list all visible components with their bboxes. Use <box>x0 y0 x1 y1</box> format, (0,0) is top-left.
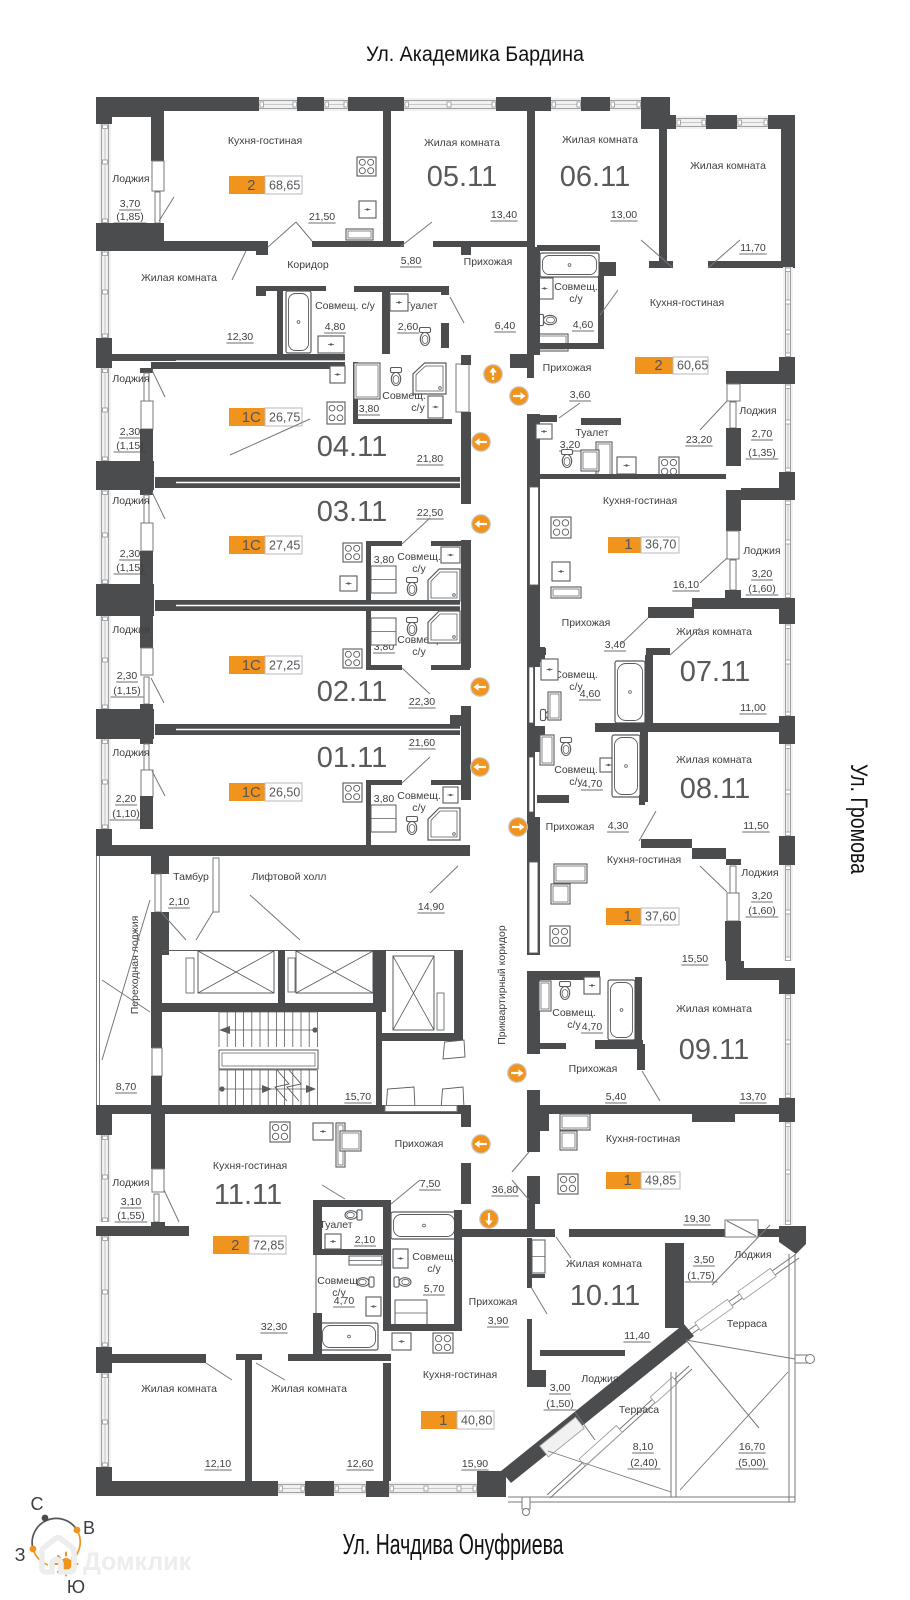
svg-text:11,50: 11,50 <box>743 820 769 832</box>
svg-text:С: С <box>31 1494 44 1514</box>
svg-text:Жилая комната: Жилая комната <box>690 160 766 172</box>
svg-text:В: В <box>83 1518 95 1538</box>
svg-text:Жилая комната: Жилая комната <box>676 626 752 638</box>
svg-text:Совмещ.: Совмещ. <box>397 790 441 802</box>
svg-text:Прихожая: Прихожая <box>546 821 595 833</box>
svg-text:49,85: 49,85 <box>645 1174 676 1188</box>
svg-text:Совмещ.: Совмещ. <box>317 1275 361 1287</box>
svg-text:1: 1 <box>439 1412 447 1429</box>
svg-text:3,20: 3,20 <box>752 890 773 902</box>
svg-text:13,70: 13,70 <box>740 1091 766 1103</box>
svg-text:Совмещ.: Совмещ. <box>382 390 426 402</box>
svg-text:09.11: 09.11 <box>679 1034 749 1066</box>
svg-text:15,50: 15,50 <box>682 953 708 965</box>
svg-text:Жилая комната: Жилая комната <box>141 1383 217 1395</box>
svg-text:4,70: 4,70 <box>334 1295 355 1307</box>
svg-text:04.11: 04.11 <box>317 431 387 463</box>
svg-text:Совмещ.: Совмещ. <box>412 1251 456 1263</box>
svg-text:3,80: 3,80 <box>359 403 380 415</box>
svg-text:с/у: с/у <box>412 646 426 658</box>
svg-text:22,30: 22,30 <box>409 696 435 708</box>
svg-text:Ю: Ю <box>67 1577 85 1597</box>
svg-text:02.11: 02.11 <box>317 676 387 708</box>
svg-text:1: 1 <box>624 1172 632 1189</box>
svg-text:08.11: 08.11 <box>680 773 750 805</box>
svg-text:2,60: 2,60 <box>398 321 419 333</box>
svg-text:13,40: 13,40 <box>491 209 517 221</box>
svg-text:Кухня-гостиная: Кухня-гостиная <box>607 854 681 866</box>
svg-text:с/у: с/у <box>569 293 583 305</box>
svg-text:7,50: 7,50 <box>420 1178 441 1190</box>
svg-text:2,30: 2,30 <box>120 548 141 560</box>
svg-text:(1,85): (1,85) <box>116 211 143 223</box>
svg-text:60,65: 60,65 <box>677 359 708 373</box>
svg-text:26,75: 26,75 <box>269 411 300 425</box>
svg-text:Жилая комната: Жилая комната <box>566 1258 642 1270</box>
svg-text:Ул. Академика Бардина: Ул. Академика Бардина <box>366 43 584 66</box>
svg-text:Лифтовой холл: Лифтовой холл <box>252 871 327 883</box>
svg-text:2: 2 <box>231 1237 239 1254</box>
svg-text:3,00: 3,00 <box>550 1382 571 1394</box>
svg-text:3,50: 3,50 <box>694 1254 715 1266</box>
svg-text:(1,50): (1,50) <box>546 1398 573 1410</box>
svg-text:с/у: с/у <box>567 1019 581 1031</box>
svg-text:Жилая комната: Жилая комната <box>676 1003 752 1015</box>
svg-text:03.11: 03.11 <box>317 496 387 528</box>
svg-text:4,30: 4,30 <box>608 820 629 832</box>
svg-text:Приквартирный коридор: Приквартирный коридор <box>496 925 508 1045</box>
svg-text:36,70: 36,70 <box>645 538 676 552</box>
svg-text:Совмещ.: Совмещ. <box>554 281 598 293</box>
svg-text:с/у: с/у <box>412 802 426 814</box>
svg-text:Прихожая: Прихожая <box>543 362 592 374</box>
svg-text:Туалет: Туалет <box>575 427 608 439</box>
svg-text:(1,10): (1,10) <box>112 808 139 820</box>
svg-text:Прихожая: Прихожая <box>464 256 513 268</box>
svg-text:1С: 1С <box>242 784 261 801</box>
svg-text:Лоджия: Лоджия <box>112 373 149 385</box>
svg-text:16,70: 16,70 <box>739 1441 765 1453</box>
svg-text:12,30: 12,30 <box>227 331 253 343</box>
svg-text:21,80: 21,80 <box>417 453 443 465</box>
svg-text:Лоджия: Лоджия <box>734 1249 771 1261</box>
svg-text:Совмещ. с/у: Совмещ. с/у <box>315 300 376 312</box>
svg-text:Прихожая: Прихожая <box>469 1296 518 1308</box>
svg-text:4,60: 4,60 <box>573 319 594 331</box>
svg-text:2,70: 2,70 <box>752 428 773 440</box>
svg-text:15,90: 15,90 <box>462 1458 488 1470</box>
svg-text:Жилая комната: Жилая комната <box>676 754 752 766</box>
svg-text:(1,35): (1,35) <box>748 447 775 459</box>
svg-text:01.11: 01.11 <box>317 742 387 774</box>
svg-text:21,50: 21,50 <box>309 211 335 223</box>
svg-text:3,20: 3,20 <box>752 568 773 580</box>
svg-text:1С: 1С <box>242 537 261 554</box>
svg-text:Лоджия: Лоджия <box>112 495 149 507</box>
svg-text:2,30: 2,30 <box>120 426 141 438</box>
svg-text:3,70: 3,70 <box>120 198 141 210</box>
svg-text:27,45: 27,45 <box>269 539 300 553</box>
svg-text:21,60: 21,60 <box>409 737 435 749</box>
svg-text:Лоджия: Лоджия <box>741 867 778 879</box>
svg-text:3,10: 3,10 <box>121 1196 142 1208</box>
svg-text:Домклик: Домклик <box>83 1548 192 1576</box>
svg-text:2,10: 2,10 <box>355 1234 376 1246</box>
svg-text:Кухня-гостиная: Кухня-гостиная <box>423 1369 497 1381</box>
svg-text:2,30: 2,30 <box>117 670 138 682</box>
svg-text:Лоджия: Лоджия <box>112 624 149 636</box>
svg-text:Лоджия: Лоджия <box>112 173 149 185</box>
svg-text:Терраса: Терраса <box>727 1318 767 1330</box>
svg-text:(1,55): (1,55) <box>117 1210 144 1222</box>
svg-text:Жилая комната: Жилая комната <box>141 272 217 284</box>
svg-text:Совмещ.: Совмещ. <box>554 764 598 776</box>
svg-text:Кухня-гостиная: Кухня-гостиная <box>650 297 724 309</box>
svg-text:5,80: 5,80 <box>401 255 422 267</box>
svg-text:(1,15): (1,15) <box>113 685 140 697</box>
svg-text:(1,75): (1,75) <box>687 1270 714 1282</box>
svg-text:Лоджия: Лоджия <box>112 1177 149 1189</box>
svg-text:19,30: 19,30 <box>684 1213 710 1225</box>
svg-text:2: 2 <box>247 177 255 194</box>
svg-text:(2,40): (2,40) <box>630 1457 657 1469</box>
svg-text:4,80: 4,80 <box>325 321 346 333</box>
svg-text:Туалет: Туалет <box>319 1219 352 1231</box>
svg-text:5,40: 5,40 <box>606 1091 627 1103</box>
svg-text:Кухня-гостиная: Кухня-гостиная <box>228 135 302 147</box>
svg-text:(5,00): (5,00) <box>738 1457 765 1469</box>
svg-text:13,00: 13,00 <box>611 209 637 221</box>
svg-text:Прихожая: Прихожая <box>569 1063 618 1075</box>
svg-text:Лоджия: Лоджия <box>112 747 149 759</box>
svg-text:Жилая комната: Жилая комната <box>424 137 500 149</box>
svg-text:14,90: 14,90 <box>418 901 444 913</box>
svg-text:2,10: 2,10 <box>169 896 190 908</box>
svg-text:2,20: 2,20 <box>116 793 137 805</box>
svg-text:12,10: 12,10 <box>205 1458 231 1470</box>
svg-text:1: 1 <box>624 536 632 553</box>
svg-text:1С: 1С <box>242 657 261 674</box>
svg-text:8,70: 8,70 <box>116 1081 137 1093</box>
svg-text:27,25: 27,25 <box>269 659 300 673</box>
svg-text:Совмещ.: Совмещ. <box>397 551 441 563</box>
svg-text:(1,15): (1,15) <box>116 440 143 452</box>
svg-text:32,30: 32,30 <box>261 1321 287 1333</box>
svg-text:Совмещ.: Совмещ. <box>552 1007 596 1019</box>
svg-text:5,70: 5,70 <box>424 1283 445 1295</box>
svg-text:3,80: 3,80 <box>374 793 395 805</box>
svg-text:11.11: 11.11 <box>214 1179 282 1211</box>
svg-text:68,65: 68,65 <box>269 179 300 193</box>
svg-text:Лоджия: Лоджия <box>739 405 776 417</box>
svg-text:3,40: 3,40 <box>605 639 626 651</box>
svg-text:07.11: 07.11 <box>680 656 750 688</box>
svg-text:40,80: 40,80 <box>461 1414 492 1428</box>
svg-text:11,40: 11,40 <box>624 1330 650 1342</box>
svg-text:с/у: с/у <box>427 1263 441 1275</box>
svg-text:Жилая комната: Жилая комната <box>562 134 638 146</box>
svg-text:Прихожая: Прихожая <box>562 617 611 629</box>
svg-text:З: З <box>15 1545 26 1565</box>
svg-text:Тамбур: Тамбур <box>173 871 209 883</box>
svg-text:3,60: 3,60 <box>570 389 591 401</box>
svg-text:3,90: 3,90 <box>488 1315 509 1327</box>
svg-text:6,40: 6,40 <box>495 320 516 332</box>
svg-text:11,00: 11,00 <box>740 702 766 714</box>
svg-text:Терраса: Терраса <box>619 1404 659 1416</box>
svg-text:Туалет: Туалет <box>404 300 437 312</box>
svg-text:16,10: 16,10 <box>673 579 699 591</box>
svg-text:Ул. Начдива Онуфриева: Ул. Начдива Онуфриева <box>343 1529 565 1561</box>
svg-text:Прихожая: Прихожая <box>395 1138 444 1150</box>
svg-text:1С: 1С <box>242 409 261 426</box>
svg-text:2: 2 <box>654 357 662 374</box>
svg-text:8,10: 8,10 <box>633 1441 654 1453</box>
svg-text:06.11: 06.11 <box>560 161 630 193</box>
svg-text:22,50: 22,50 <box>417 507 443 519</box>
svg-text:37,60: 37,60 <box>645 910 676 924</box>
svg-text:1: 1 <box>624 908 632 925</box>
svg-text:05.11: 05.11 <box>427 161 497 193</box>
svg-text:Жилая комната: Жилая комната <box>271 1383 347 1395</box>
svg-text:с/у: с/у <box>411 402 425 414</box>
svg-text:36,80: 36,80 <box>492 1184 518 1196</box>
svg-text:26,50: 26,50 <box>269 786 300 800</box>
svg-text:Кухня-гостиная: Кухня-гостиная <box>606 1133 680 1145</box>
svg-text:23,20: 23,20 <box>686 434 712 446</box>
svg-text:4,70: 4,70 <box>582 778 603 790</box>
svg-text:Лоджия: Лоджия <box>743 545 780 557</box>
svg-text:4,70: 4,70 <box>582 1021 603 1033</box>
svg-text:11,70: 11,70 <box>740 242 766 254</box>
svg-text:(1,60): (1,60) <box>748 905 775 917</box>
svg-text:с/у: с/у <box>412 563 426 575</box>
svg-text:Ул. Громова: Ул. Громова <box>845 764 872 875</box>
svg-text:Кухня-гостиная: Кухня-гостиная <box>603 495 677 507</box>
svg-text:Лоджия: Лоджия <box>581 1373 618 1385</box>
svg-text:(1,15): (1,15) <box>116 562 143 574</box>
svg-text:4,60: 4,60 <box>580 688 601 700</box>
svg-text:72,85: 72,85 <box>253 1239 284 1253</box>
svg-text:10.11: 10.11 <box>570 1280 640 1312</box>
svg-text:3,80: 3,80 <box>374 554 395 566</box>
svg-text:(1,60): (1,60) <box>748 583 775 595</box>
svg-text:Кухня-гостиная: Кухня-гостиная <box>213 1160 287 1172</box>
svg-text:Совмещ.: Совмещ. <box>554 669 598 681</box>
svg-text:Коридор: Коридор <box>287 259 329 271</box>
svg-text:15,70: 15,70 <box>345 1091 371 1103</box>
svg-text:12,60: 12,60 <box>347 1458 373 1470</box>
